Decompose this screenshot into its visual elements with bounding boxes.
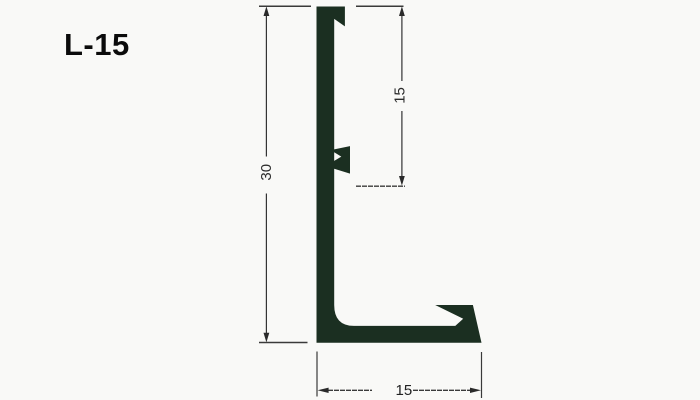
svg-text:15: 15	[396, 382, 413, 399]
svg-text:15: 15	[391, 87, 408, 104]
svg-text:30: 30	[258, 164, 275, 181]
svg-text:L-15: L-15	[64, 27, 130, 62]
